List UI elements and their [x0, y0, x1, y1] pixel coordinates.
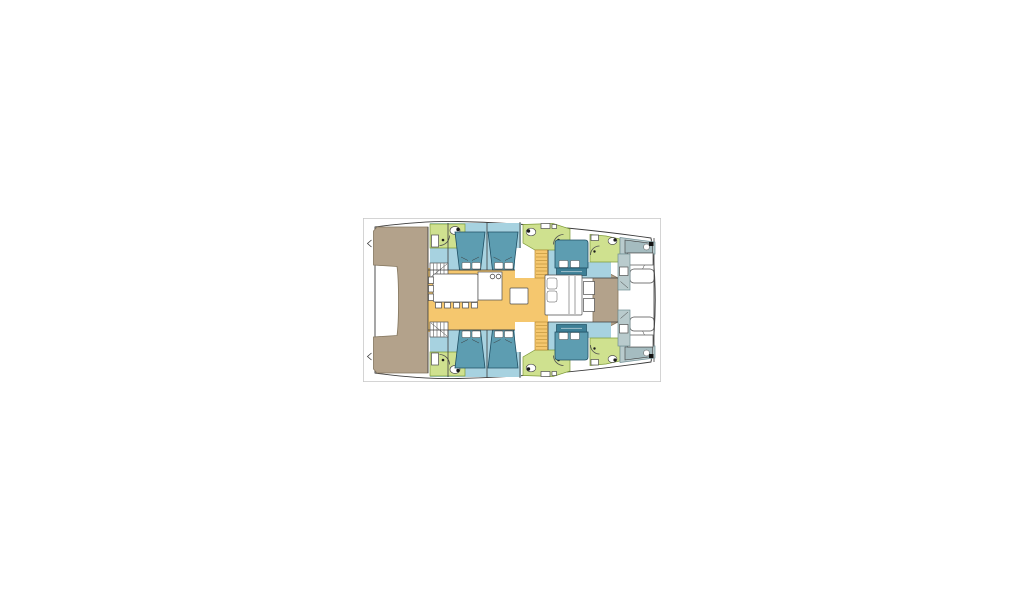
forward-bathroom	[590, 235, 620, 263]
pillow	[472, 263, 481, 270]
sink-icon	[591, 235, 599, 241]
pillow	[547, 278, 557, 289]
sink-icon	[541, 224, 550, 229]
berth-step	[584, 282, 595, 295]
corridor	[515, 248, 535, 278]
catamaran-floor-plan	[363, 218, 661, 382]
crew-berth-foot	[628, 253, 654, 265]
toilet-dot	[613, 238, 616, 241]
page-background	[0, 0, 1024, 600]
toilet-dot	[527, 229, 530, 232]
dining-table	[433, 274, 478, 302]
shower-head-dot	[442, 239, 445, 242]
pillow	[495, 263, 504, 270]
forward-guest-bed	[555, 240, 588, 276]
toilet-dot	[456, 228, 459, 231]
floor-plan-svg	[363, 218, 661, 382]
pillow	[559, 261, 568, 268]
crew-pillow	[644, 244, 650, 250]
sink-icon-small	[552, 225, 557, 229]
galley-island	[510, 288, 528, 304]
shower-head-dot	[593, 250, 595, 252]
pillow	[462, 263, 471, 270]
pillow	[571, 261, 580, 268]
pillow	[505, 263, 514, 270]
galley-counter	[478, 272, 502, 300]
aft-guest-bed-2	[488, 232, 518, 270]
berth-step	[584, 299, 595, 312]
bow-lounge-top	[630, 269, 654, 283]
bow-lounge-bottom	[630, 317, 654, 331]
pillow	[547, 291, 557, 302]
mid-stairs	[535, 250, 548, 278]
aft-guest-bed-1	[455, 232, 485, 270]
deck-hatch-icon	[620, 267, 629, 276]
sink-icon	[432, 235, 439, 247]
bow-cleat-icon	[649, 242, 654, 246]
transom-chevron-icon	[368, 240, 372, 247]
